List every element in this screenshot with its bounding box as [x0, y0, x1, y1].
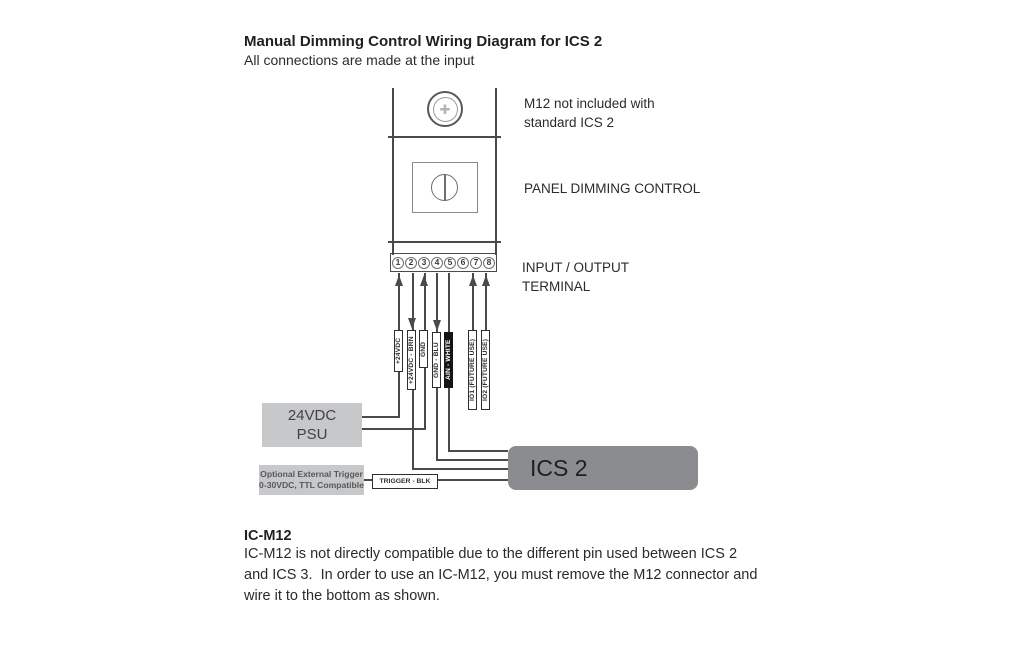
- external-trigger-box: Optional External Trigger 0-30VDC, TTL C…: [259, 465, 364, 495]
- terminal-3: 3: [418, 257, 430, 269]
- wire-label-gnd-blu: GND - BLU: [432, 332, 441, 388]
- arrow-down-wire2-icon: [408, 318, 416, 329]
- wire-label-24vdc-brn: +24VDC - BRN: [407, 330, 416, 390]
- footer-line2: and ICS 3. In order to use an IC-M12, yo…: [244, 567, 757, 583]
- psu-to-wire1-run: [362, 416, 400, 418]
- terminal-4: 4: [431, 257, 443, 269]
- wire5-to-ics-run: [448, 450, 508, 452]
- panel-dimming-label: PANEL DIMMING CONTROL: [524, 179, 700, 198]
- trigger-blk-label: TRIGGER - BLK: [372, 474, 438, 489]
- wire-label-gnd: GND: [419, 330, 428, 368]
- io-terminal-label: INPUT / OUTPUT TERMINAL: [522, 258, 629, 296]
- external-trigger-line1: Optional External Trigger: [260, 469, 363, 480]
- arrow-up-terminal3-icon: [420, 275, 428, 286]
- terminal-1: 1: [392, 257, 404, 269]
- terminal-8: 8: [483, 257, 495, 269]
- wire-label-ain-white: AIN - WHITE: [444, 332, 453, 388]
- io-terminal-strip: 1 2 3 4 5 6 7 8: [390, 253, 497, 272]
- arrow-up-terminal8-icon: [482, 275, 490, 286]
- ics2-box: ICS 2: [508, 446, 698, 490]
- terminal-2: 2: [405, 257, 417, 269]
- m12-connector: ✚: [427, 91, 463, 127]
- terminal-5: 5: [444, 257, 456, 269]
- m12-note: M12 not included with standard ICS 2: [524, 94, 655, 132]
- dimming-knob-slot: [444, 175, 446, 201]
- m12-note-line2: standard ICS 2: [524, 113, 655, 132]
- arrow-up-terminal1-icon: [395, 275, 403, 286]
- ics2-label: ICS 2: [530, 455, 588, 482]
- device-divider-top: [388, 136, 501, 138]
- psu-box: 24VDC PSU: [262, 403, 362, 447]
- psu-to-wire3-run: [362, 428, 425, 430]
- terminal-6: 6: [457, 257, 469, 269]
- wire-label-io1-future-use: IO1 (FUTURE USE): [468, 330, 477, 410]
- arrow-up-terminal7-icon: [469, 275, 477, 286]
- device-divider-bottom: [388, 241, 501, 243]
- psu-label-line1: 24VDC: [288, 406, 336, 425]
- arrow-down-wire4-icon: [433, 320, 441, 331]
- device-body-left-edge: [392, 88, 394, 255]
- device-body-right-edge: [495, 88, 497, 255]
- m12-note-line1: M12 not included with: [524, 94, 655, 113]
- footer-heading: IC-M12: [244, 528, 292, 544]
- wire-label-io2-future-use: IO2 (FUTURE USE): [481, 330, 490, 410]
- m12-pins-icon: ✚: [433, 97, 458, 122]
- footer-line1: IC-M12 is not directly compatible due to…: [244, 546, 737, 562]
- footer-line3: wire it to the bottom as shown.: [244, 588, 440, 604]
- wire-label-24vdc: +24VDC: [394, 330, 403, 372]
- wiring-diagram-page: Manual Dimming Control Wiring Diagram fo…: [0, 0, 1024, 656]
- external-trigger-line2: 0-30VDC, TTL Compatible: [259, 480, 364, 491]
- wire4-to-ics-run: [436, 459, 508, 461]
- terminal-7: 7: [470, 257, 482, 269]
- psu-label-line2: PSU: [297, 425, 328, 444]
- page-subtitle: All connections are made at the input: [244, 52, 474, 68]
- wire2-to-ics-run: [412, 468, 509, 470]
- page-title: Manual Dimming Control Wiring Diagram fo…: [244, 33, 602, 50]
- io-terminal-label-line1: INPUT / OUTPUT: [522, 258, 629, 277]
- io-terminal-label-line2: TERMINAL: [522, 277, 629, 296]
